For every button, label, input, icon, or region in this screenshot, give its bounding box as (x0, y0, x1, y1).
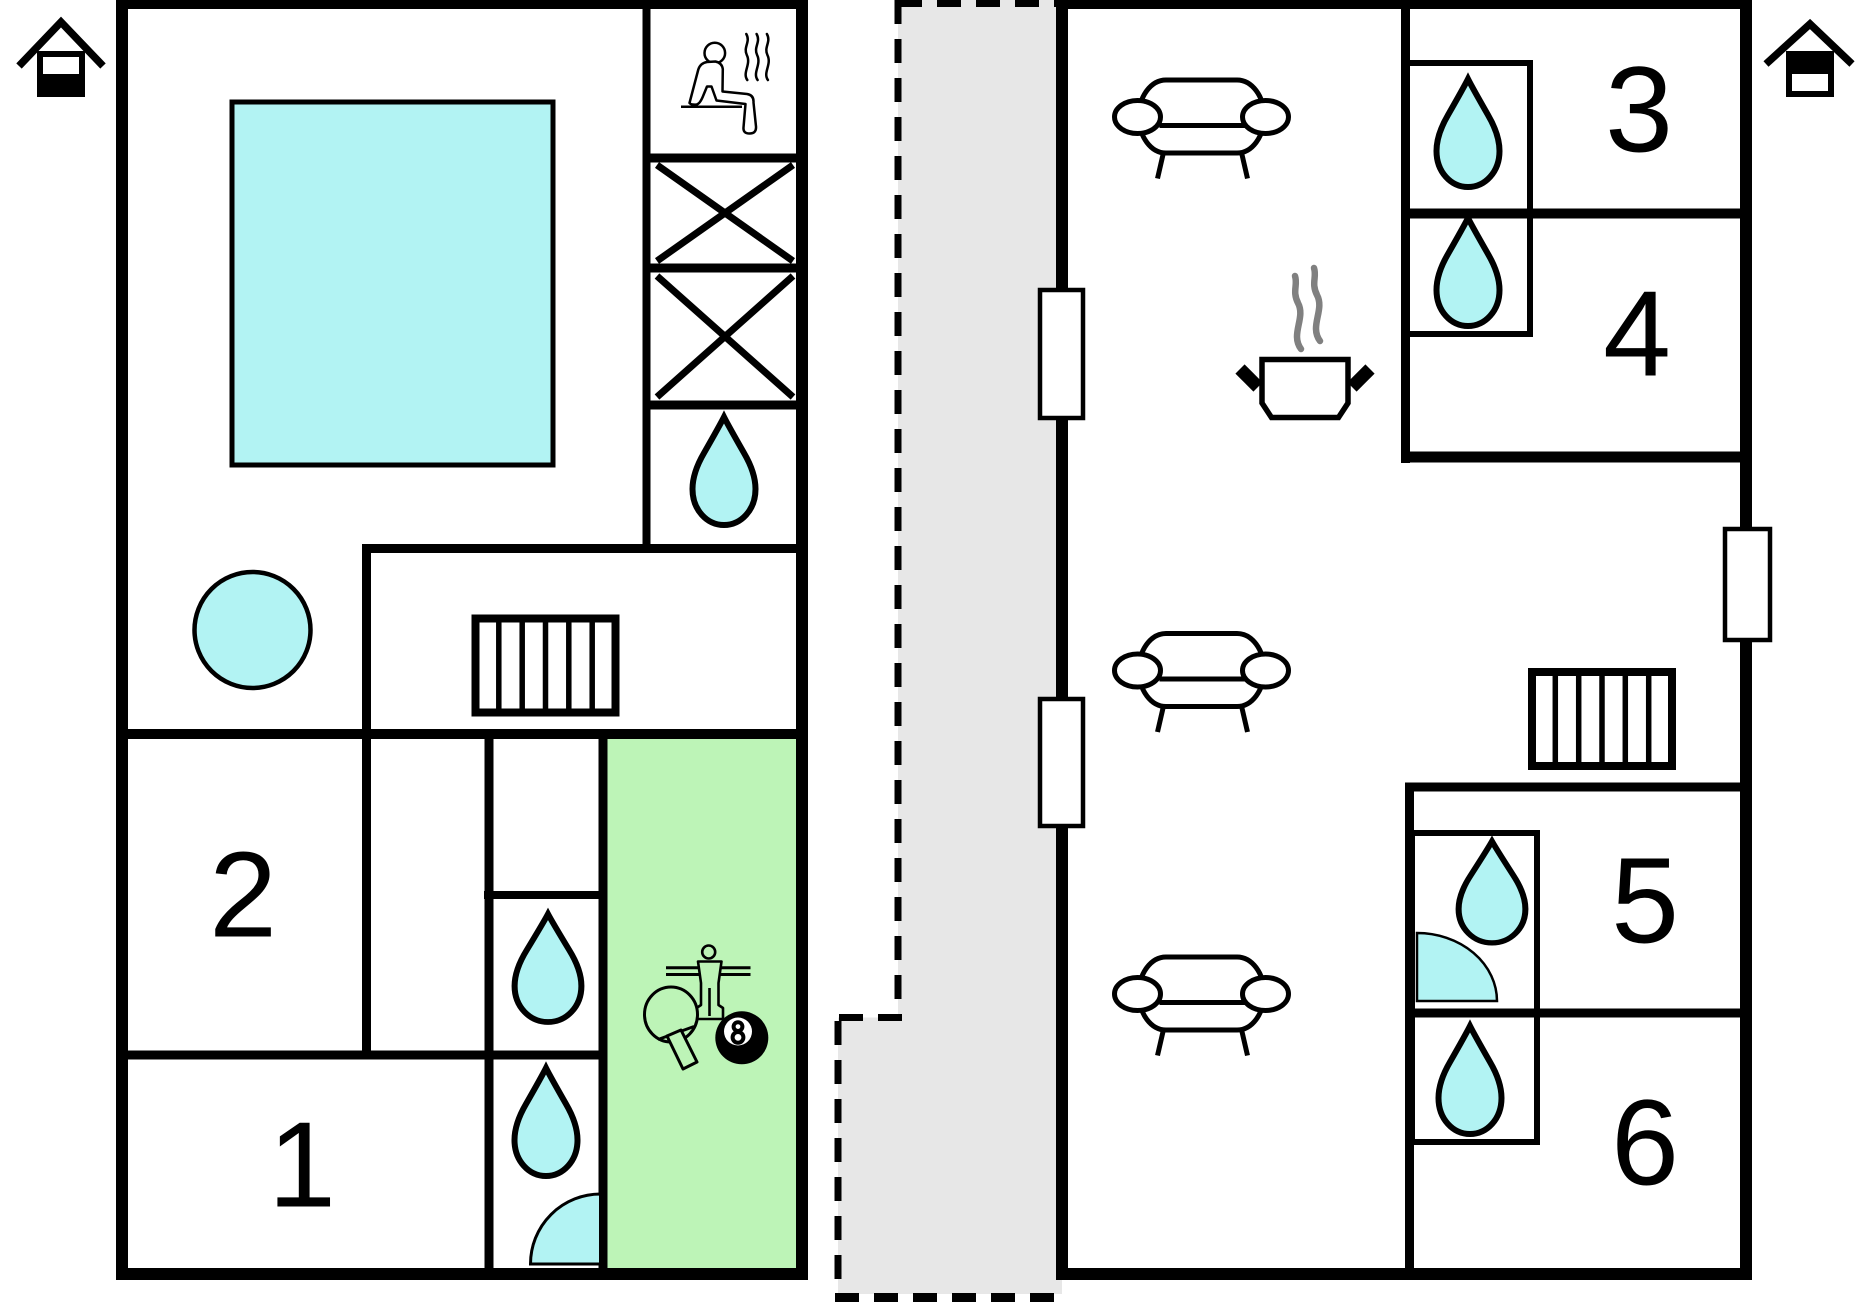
svg-text:5: 5 (1611, 833, 1679, 969)
svg-text:6: 6 (1611, 1075, 1679, 1211)
svg-text:1: 1 (268, 1097, 336, 1233)
svg-text:2: 2 (209, 827, 277, 963)
svg-text:3: 3 (1605, 42, 1673, 178)
svg-text:4: 4 (1603, 266, 1671, 402)
